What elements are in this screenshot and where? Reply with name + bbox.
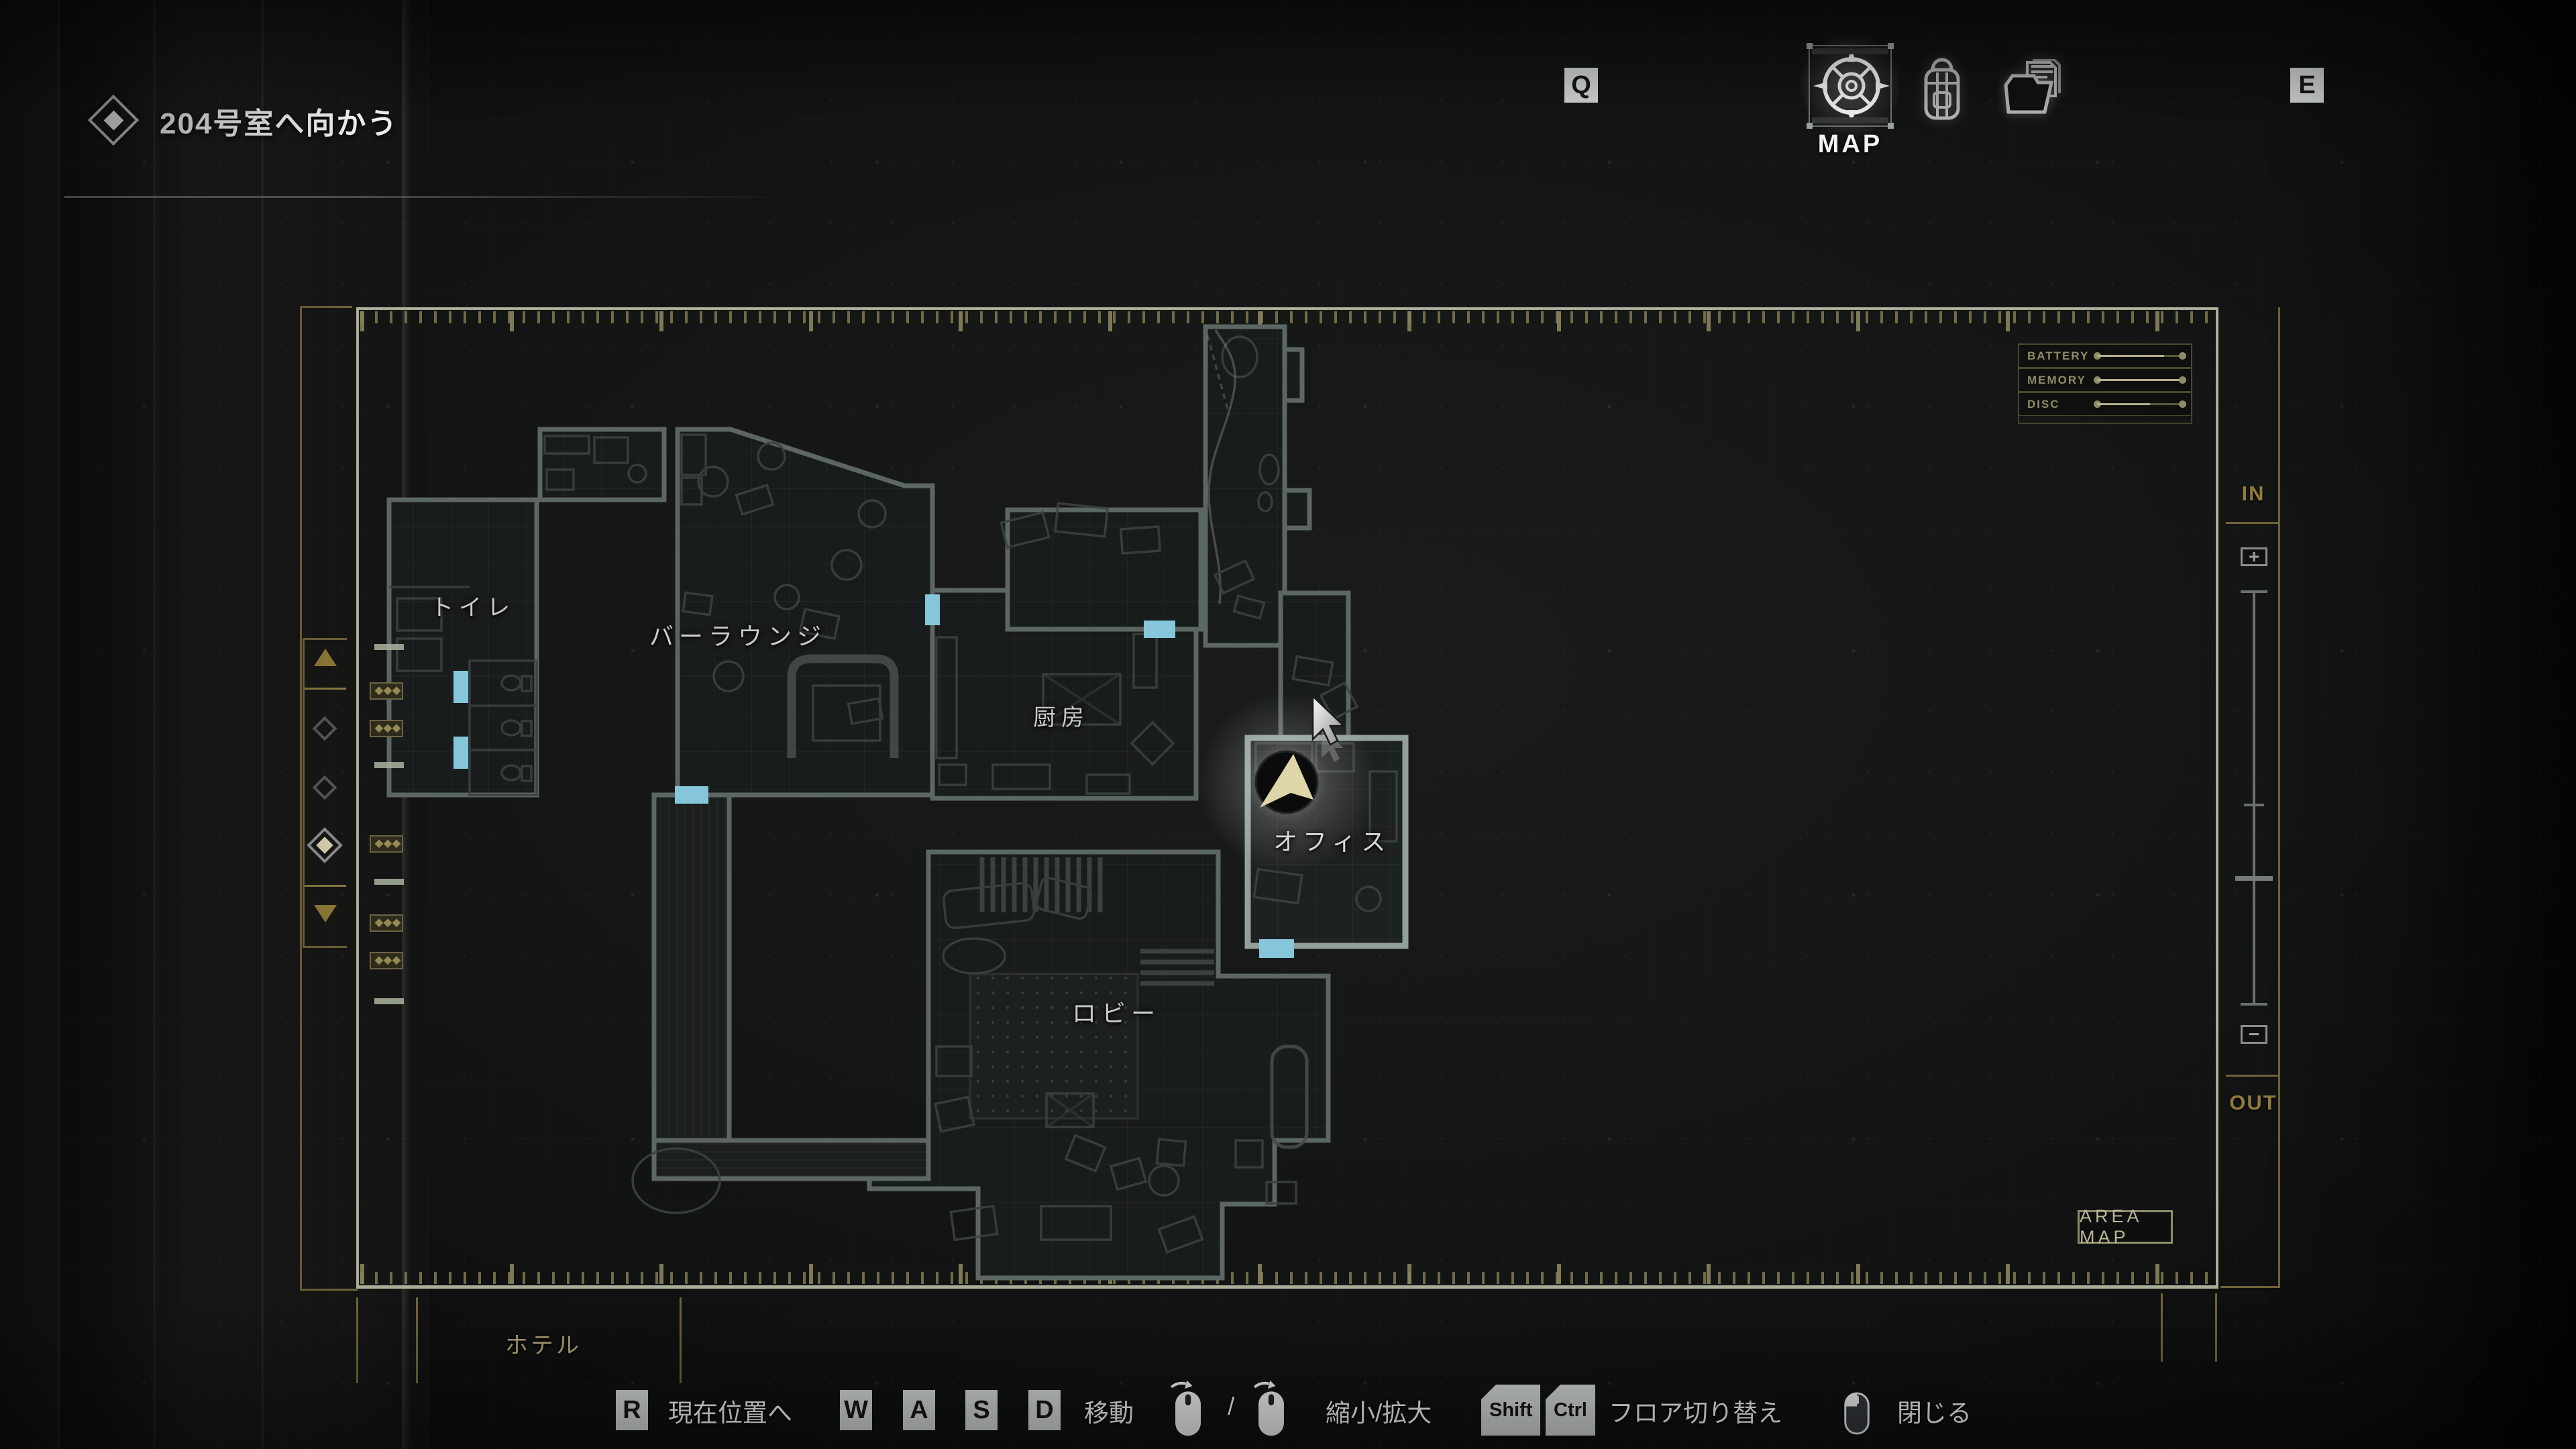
corridor-alcove-2 [1285,490,1309,528]
corridor-lobby-arm [654,1140,928,1179]
control-label-close: 閉じる [1897,1393,1972,1429]
floor-item-1-current[interactable] [307,827,343,863]
key-hint-ctrl: Ctrl [1546,1385,1595,1436]
zoom-slider-midtick [2244,804,2264,806]
system-meters: BATTERY MEMORY DISC [2018,343,2192,424]
room-label-lobby: ロビー [1072,994,1161,1029]
zoom-out-label: OUT [2226,1091,2281,1115]
door-lounge-south [675,786,708,804]
key-hint-d: D [1028,1390,1061,1430]
key-hint-s: S [965,1390,998,1430]
zoom-in-button[interactable]: + [2241,547,2267,566]
memory-meter: MEMORY [2018,368,2192,392]
key-hint-shift: Shift [1481,1385,1540,1436]
key-hint-r: R [616,1390,648,1430]
control-slash: / [1228,1393,1234,1421]
corridor-alcove-1 [1285,350,1302,400]
door-kitchen-north [1144,621,1175,638]
floor-down-button[interactable] [314,905,337,922]
battery-meter: BATTERY [2018,343,2192,368]
corridor-lobby-link [654,795,729,1140]
room-label-office: オフィス [1273,822,1391,857]
key-hint-w: W [840,1390,872,1430]
area-map-button[interactable]: AREA MAP [2078,1210,2173,1244]
controls-bar: R 現在位置へ W A S D 移動 / 縮小/拡大 Shift Ctrl フロ… [604,1377,2019,1444]
floor-item-2[interactable] [313,775,337,800]
floor-up-button[interactable] [314,649,337,666]
zoom-in-label: IN [2226,482,2281,506]
map-viewport[interactable] [0,0,2576,1449]
area-name: ホテル [443,1327,644,1360]
map-edge-chips [370,644,404,1004]
door-toilet-2 [453,737,468,769]
door-toilet-1 [453,671,468,703]
room-label-bar-lounge: バーラウンジ [649,617,826,652]
map-screen: { "objective": { "text": "204号室へ向かう" }, … [0,0,2576,1449]
control-label-move: 移動 [1084,1393,1134,1429]
door-lounge-east [925,594,940,625]
key-hint-a: A [903,1390,935,1430]
door-office-south [1259,939,1294,958]
zoom-slider-handle[interactable] [2235,876,2273,881]
control-label-current-position: 現在位置へ [668,1393,792,1429]
room-kitchen-annex [1008,510,1201,629]
zoom-slider-track[interactable] [2253,590,2255,1003]
zoom-out-button[interactable]: − [2241,1025,2267,1044]
control-label-floor-switch: フロア切り替え [1609,1393,1782,1429]
floor-selector [303,638,345,948]
room-label-toilet: トイレ [431,589,515,622]
mouse-wheel-icon-1 [1166,1381,1210,1442]
control-label-zoom: 縮小/拡大 [1326,1393,1432,1429]
floor-item-3[interactable] [313,716,337,741]
mouse-click-icon [1837,1381,1877,1442]
room-label-kitchen: 厨房 [1033,699,1089,732]
disc-meter: DISC [2018,392,2192,416]
zoom-rail: IN + − OUT [2226,463,2281,1127]
mouse-wheel-icon-2 [1249,1381,1293,1442]
player-marker [1256,751,1318,813]
